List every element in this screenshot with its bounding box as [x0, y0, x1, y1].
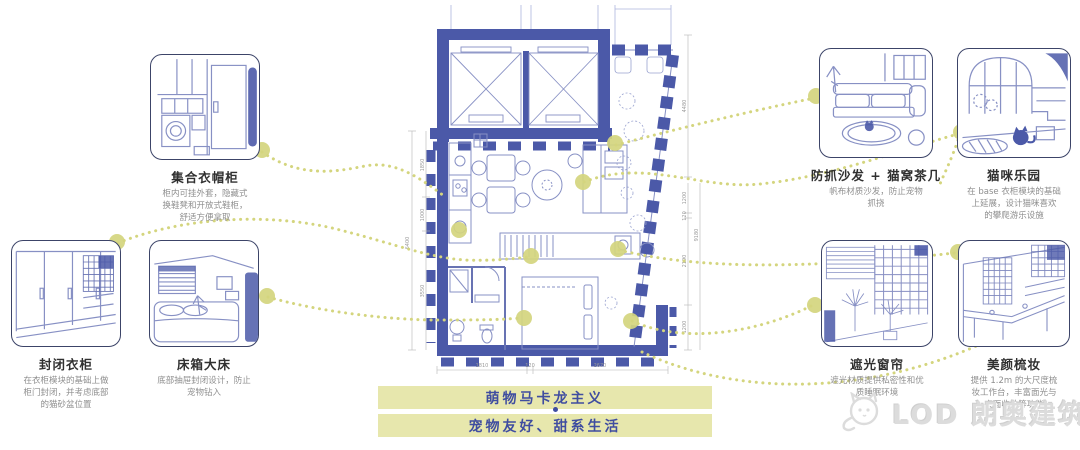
banner-slogan: 宠物友好、甜系生活: [378, 414, 712, 437]
cat-logo-icon: [838, 392, 884, 432]
thumb-blackout-curtain: 遮光窗帘 遮光材质提供私密性和优 质睡眠环境: [806, 240, 948, 400]
thumb-desc: 在 base 衣柜模块的基础 上延展，设计猫咪喜欢 的攀爬游乐设施: [967, 187, 1061, 223]
thumb-title: 美颜梳妆: [987, 354, 1041, 373]
thumb-title: 防抓沙发 + 猫窝茶几: [811, 165, 941, 184]
dim-label: 1200: [682, 321, 688, 334]
closet-illustration-icon: [12, 241, 120, 346]
interior-walls: [448, 267, 505, 350]
thumb-image-closed-closet: [11, 240, 121, 347]
vanity-illustration-icon: [959, 241, 1069, 346]
thumb-image-wardrobe-hall: [150, 54, 260, 160]
thumb-image-vanity: [958, 240, 1070, 347]
thumb-desc: 帆布材质沙发，防止宠物 抓挠: [829, 187, 923, 211]
thumb-wardrobe-hall: 集合衣帽柜 柜内可挂外套，隐藏式 换鞋凳和开放式鞋柜， 舒适方便拿取: [130, 54, 280, 225]
thumb-storage-bed: 床箱大床 底部抽屉封闭设计，防止 宠物钻入: [138, 240, 270, 400]
thumb-title: 猫咪乐园: [987, 165, 1041, 184]
infographic-canvas: 6400 1850 1000 3550 4480 9180 1200 120 2…: [0, 0, 1080, 450]
dim-label: 1810: [476, 363, 489, 369]
thumb-title: 遮光窗帘: [850, 354, 904, 373]
dim-label: 2190: [682, 255, 688, 268]
floor-plan: 6400 1850 1000 3550 4480 9180 1200 120 2…: [375, 5, 710, 383]
bedroom-illustration-icon: [150, 241, 258, 346]
banner-slogan-text: 宠物友好、甜系生活: [469, 416, 622, 436]
sofa-illustration-icon: [820, 49, 932, 157]
dim-label: 1000: [420, 209, 426, 222]
thumb-desc: 在衣柜模块的基础上做 柜门封闭，并考虑底部 的猫砂盆位置: [23, 376, 108, 412]
thumb-desc: 柜内可挂外套，隐藏式 换鞋凳和开放式鞋柜， 舒适方便拿取: [162, 189, 247, 225]
dim-label: 6400: [405, 237, 411, 250]
brand-logo: LOD 朗奥建筑: [838, 392, 1080, 432]
curtain-illustration-icon: [822, 241, 932, 346]
thumb-image-storage-bed: [149, 240, 259, 347]
dim-label: 1200: [682, 192, 688, 205]
dim-label: 2670: [594, 363, 607, 369]
dim-label: 120: [682, 211, 688, 221]
dim-label: 1850: [420, 159, 426, 172]
thumb-title: 床箱大床: [177, 354, 231, 373]
furniture: [449, 134, 654, 349]
thumb-sofa-cat-table: 防抓沙发 + 猫窝茶几 帆布材质沙发，防止宠物 抓挠: [800, 48, 952, 211]
dim-label: 4480: [682, 100, 688, 113]
thumb-desc: 底部抽屉封闭设计，防止 宠物钻入: [157, 376, 251, 400]
facade-band: [612, 50, 673, 347]
thumb-vanity: 美颜梳妆 提供 1.2m 的大尺度梳 妆工作台，丰富面光与 桌面收纳等功能: [946, 240, 1080, 412]
thumb-image-blackout-curtain: [821, 240, 933, 347]
thumb-title: 封闭衣柜: [39, 354, 93, 373]
dim-label: 9180: [694, 229, 700, 242]
thumb-image-cat-paradise: [957, 48, 1071, 158]
thumb-title: 集合衣帽柜: [171, 167, 239, 186]
thumb-closed-closet: 封闭衣柜 在衣柜模块的基础上做 柜门封闭，并考虑底部 的猫砂盆位置: [0, 240, 132, 412]
banner-separator-dot: [553, 407, 558, 412]
cat-paradise-illustration-icon: [958, 49, 1070, 157]
thumb-cat-paradise: 猫咪乐园 在 base 衣柜模块的基础 上延展，设计猫咪喜欢 的攀爬游乐设施: [946, 48, 1080, 223]
dim-label: 120: [525, 363, 535, 369]
banner-concept: 萌物马卡龙主义: [378, 386, 712, 409]
brand-logo-text: LOD 朗奥建筑: [892, 393, 1080, 432]
wardrobe-illustration-icon: [151, 55, 259, 159]
banner-concept-text: 萌物马卡龙主义: [486, 388, 605, 408]
dim-label: 3550: [420, 285, 426, 298]
thumb-image-sofa-cat-table: [819, 48, 933, 158]
